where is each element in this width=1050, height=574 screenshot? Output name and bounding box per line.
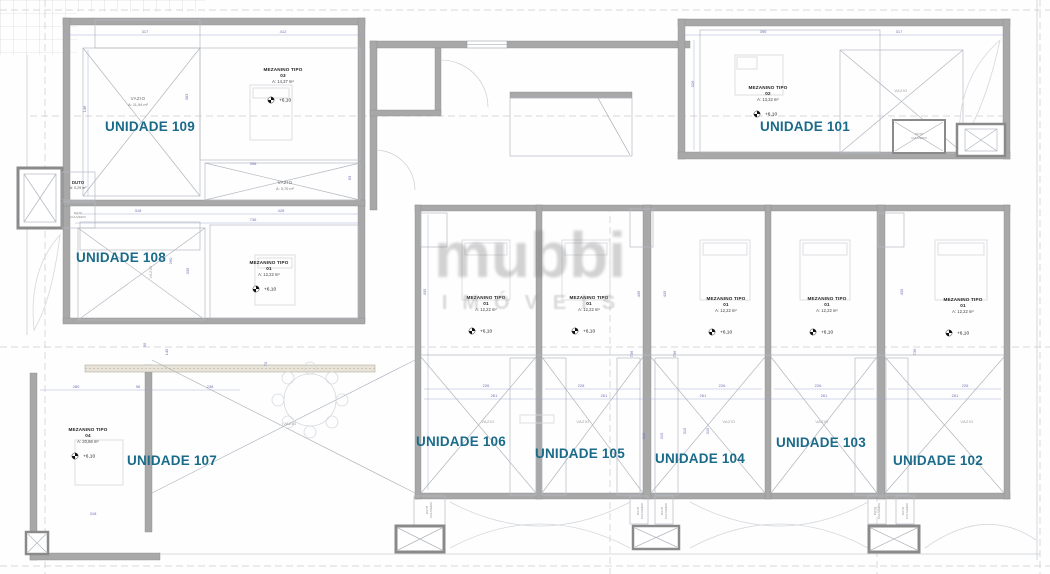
dimension-label: 226 [719, 383, 726, 388]
svg-text:CHUVEIRO: CHUVEIRO [70, 215, 87, 219]
level-value: +6,10 [583, 329, 595, 335]
svg-text:CHUVEIRO: CHUVEIRO [640, 502, 644, 519]
dimension-label: 315 [641, 432, 646, 439]
dimension-label: 383 [184, 93, 189, 100]
mezzanine-area: A: 12,22 m² [578, 307, 600, 312]
shafts-layer [18, 41, 1005, 554]
level-value: +6,10 [765, 112, 777, 118]
void-label: VAZIO [960, 419, 973, 424]
void-area: A: 3,70 m² [276, 186, 295, 191]
mezzanine-label-102: MEZANINO TIPO 01 A: 12,22 m² +6,10 [943, 297, 982, 337]
dimension-label: 315 [705, 427, 710, 434]
dimension-label: 145 [164, 348, 169, 355]
dimension-label: 226 [483, 383, 490, 388]
mezzanine-area: A: 12,22 m² [258, 272, 280, 277]
mezzanine-area: A: 12,22 m² [816, 308, 838, 313]
mezzanine-label-107: MEZANINO TIPO 04 A: 20,86 m² +6,10 [68, 427, 107, 460]
dimension-label: 736 [912, 348, 917, 355]
unit-label-109: UNIDADE 109 [105, 119, 195, 134]
unit-label-102: UNIDADE 102 [893, 453, 983, 468]
mezzanine-title: MEZANINO TIPO [263, 67, 302, 72]
dimension-label: 93 [347, 175, 352, 180]
dimension-label: 326 [690, 80, 695, 87]
dimension-label: 260 [168, 257, 173, 264]
void-label: VAZIO [576, 419, 589, 424]
void-label: VAZIO [894, 88, 907, 93]
mezzanine-label-104: MEZANINO TIPO 01 A: 12,22 m² +6,10 [706, 296, 745, 336]
mezzanine-number: 01 [586, 301, 592, 306]
dimension-label: 315 [659, 432, 664, 439]
dimension-label: 736 [672, 350, 677, 357]
level-marker-icon [268, 97, 274, 103]
mezzanine-number: 01 [960, 303, 966, 308]
mezzanine-title: MEZANINO TIPO [807, 296, 846, 301]
shower-duct-label: DUTO CHUVEIRO [425, 501, 433, 518]
mezzanine-number: 04 [85, 433, 91, 438]
dimension-label: 261 [952, 393, 959, 398]
mezzanine-title: MEZANINO TIPO [68, 427, 107, 432]
level-marker-icon [469, 328, 475, 334]
dimension-label: 226 [962, 383, 969, 388]
level-marker-icon [946, 330, 952, 336]
unit-label-104: UNIDADE 104 [655, 451, 745, 466]
dimension-label: 428 [278, 208, 285, 213]
void-label: VAZIO [722, 419, 735, 424]
dimension-label: 435 [662, 290, 667, 297]
void-label: VAZIO [148, 265, 153, 278]
dimension-label: 261 [821, 393, 828, 398]
floor-plan-page: UNIDADE 109 UNIDADE 101 UNIDADE 108 UNID… [0, 0, 1050, 574]
dimension-label: 435 [899, 288, 904, 295]
dimension-label: 395 [760, 29, 767, 34]
mezzanine-number: 01 [266, 266, 272, 271]
dimension-label: 315 [682, 427, 687, 434]
mezzanine-label-103: MEZANINO TIPO 01 A: 12,22 m² +6,10 [807, 296, 846, 336]
dimension-label: 412 [280, 29, 287, 34]
svg-text:CHUVEIRO: CHUVEIRO [911, 136, 928, 140]
mezzanine-number: 01 [483, 301, 489, 306]
mezzanine-number: 01 [723, 302, 729, 307]
mezzanine-area: A: 12,22 m² [475, 307, 497, 312]
unit-label-105: UNIDADE 105 [535, 446, 625, 461]
dimension-label: 228 [578, 383, 585, 388]
dimension-label: 90 [142, 342, 147, 347]
mezzanine-title: MEZANINO TIPO [748, 85, 787, 90]
mezzanine-title: MEZANINO TIPO [569, 295, 608, 300]
void-label: VAZIO [283, 421, 296, 426]
walls-layer [30, 18, 1010, 560]
level-value: +6,10 [821, 330, 833, 336]
dimension-label: 318 [135, 208, 142, 213]
shower-duct-label: DUTO CHUVEIRO [660, 502, 668, 519]
shower-duct-label: DUTO CHUVEIRO [901, 502, 909, 519]
svg-text:CHUVEIRO: CHUVEIRO [905, 502, 909, 519]
mezzanine-label-105: MEZANINO TIPO 01 A: 12,22 m² +6,10 [569, 295, 608, 335]
dimension-label: 238 [207, 384, 214, 389]
duct-area: A: 0,29 m² [70, 186, 87, 190]
dimension-label: 261 [601, 393, 608, 398]
level-marker-icon [754, 111, 760, 117]
level-value: +6,10 [83, 454, 95, 460]
unit-label-106: UNIDADE 106 [416, 434, 506, 449]
level-value: +6,10 [957, 331, 969, 337]
void-label: VAZIO [481, 419, 494, 424]
svg-text:CHUVEIRO: CHUVEIRO [877, 502, 881, 519]
dimension-label: 96 [136, 384, 141, 389]
shower-duct-label: DUTO CHUVEIRO [636, 502, 644, 519]
unit-label-103: UNIDADE 103 [776, 435, 866, 450]
level-marker-icon [709, 329, 715, 335]
dimension-label: 398 [250, 161, 257, 166]
level-value: +6,10 [480, 329, 492, 335]
dimension-label: 261 [700, 393, 707, 398]
void-label: VAZIO [131, 96, 146, 101]
labels-layer: UNIDADE 109 UNIDADE 101 UNIDADE 108 UNID… [68, 29, 983, 519]
level-marker-icon [810, 329, 816, 335]
dimension-label: 435 [422, 288, 427, 295]
mezzanine-area: A: 12,22 m² [715, 308, 737, 313]
svg-text:CHUVEIRO: CHUVEIRO [429, 501, 433, 518]
shower-duct-label: DUTO CHUVEIRO [70, 211, 87, 219]
dimension-label: 317 [896, 29, 903, 34]
mezzanine-area: A: 13,32 m² [757, 97, 779, 102]
shower-duct-label: DUTO CHUVEIRO [873, 502, 881, 519]
unit-label-101: UNIDADE 101 [760, 119, 850, 134]
level-marker-icon [72, 453, 78, 459]
dimension-label: 146 [82, 105, 87, 112]
level-value: +6,10 [264, 287, 276, 293]
dimension-label: 317 [142, 29, 149, 34]
level-value: +6,10 [720, 330, 732, 336]
level-value: +6,10 [279, 98, 291, 104]
dimension-lines-layer [40, 35, 1007, 490]
site-boundary-layer [0, 0, 1050, 574]
svg-text:CHUVEIRO: CHUVEIRO [664, 502, 668, 519]
mezzanine-area: A: 12,22 m² [952, 309, 974, 314]
void-label: VAZIO [278, 180, 293, 185]
dimension-label: 736 [250, 217, 257, 222]
mezzanine-label-101: MEZANINO TIPO 02 A: 13,32 m² +6,10 [748, 85, 787, 118]
mezzanine-title: MEZANINO TIPO [466, 295, 505, 300]
void-area: A: 11,94 m² [128, 102, 149, 107]
dimension-label: 280 [73, 384, 80, 389]
floor-plan-drawing: UNIDADE 109 UNIDADE 101 UNIDADE 108 UNID… [0, 0, 1050, 574]
mezzanine-number: 03 [280, 73, 286, 78]
dimension-label: 336 [185, 267, 190, 274]
mezzanine-area: A: 14,37 m² [272, 79, 294, 84]
mezzanine-title: MEZANINO TIPO [943, 297, 982, 302]
mezzanine-title: MEZANINO TIPO [249, 260, 288, 265]
void-label: VAZIO [815, 419, 828, 424]
unit-label-108: UNIDADE 108 [76, 250, 166, 265]
mezzanine-title: MEZANINO TIPO [706, 296, 745, 301]
level-marker-icon [572, 328, 578, 334]
furniture-layer [33, 40, 1036, 548]
mezzanine-label-106: MEZANINO TIPO 01 A: 12,22 m² +6,10 [466, 295, 505, 335]
mezzanine-number: 01 [824, 302, 830, 307]
dimension-label: 261 [491, 393, 498, 398]
dimension-label: 318 [90, 511, 97, 516]
dimension-label: 435 [636, 290, 641, 297]
mezzanine-area: A: 20,86 m² [77, 439, 99, 444]
level-marker-icon [253, 286, 259, 292]
dimension-label: 70 [263, 361, 268, 366]
mezzanine-number: 02 [765, 91, 771, 96]
unit-label-107: UNIDADE 107 [127, 453, 217, 468]
dimension-label: 736 [629, 350, 634, 357]
duct-label: DUTO [72, 180, 85, 185]
dimension-label: 226 [815, 383, 822, 388]
